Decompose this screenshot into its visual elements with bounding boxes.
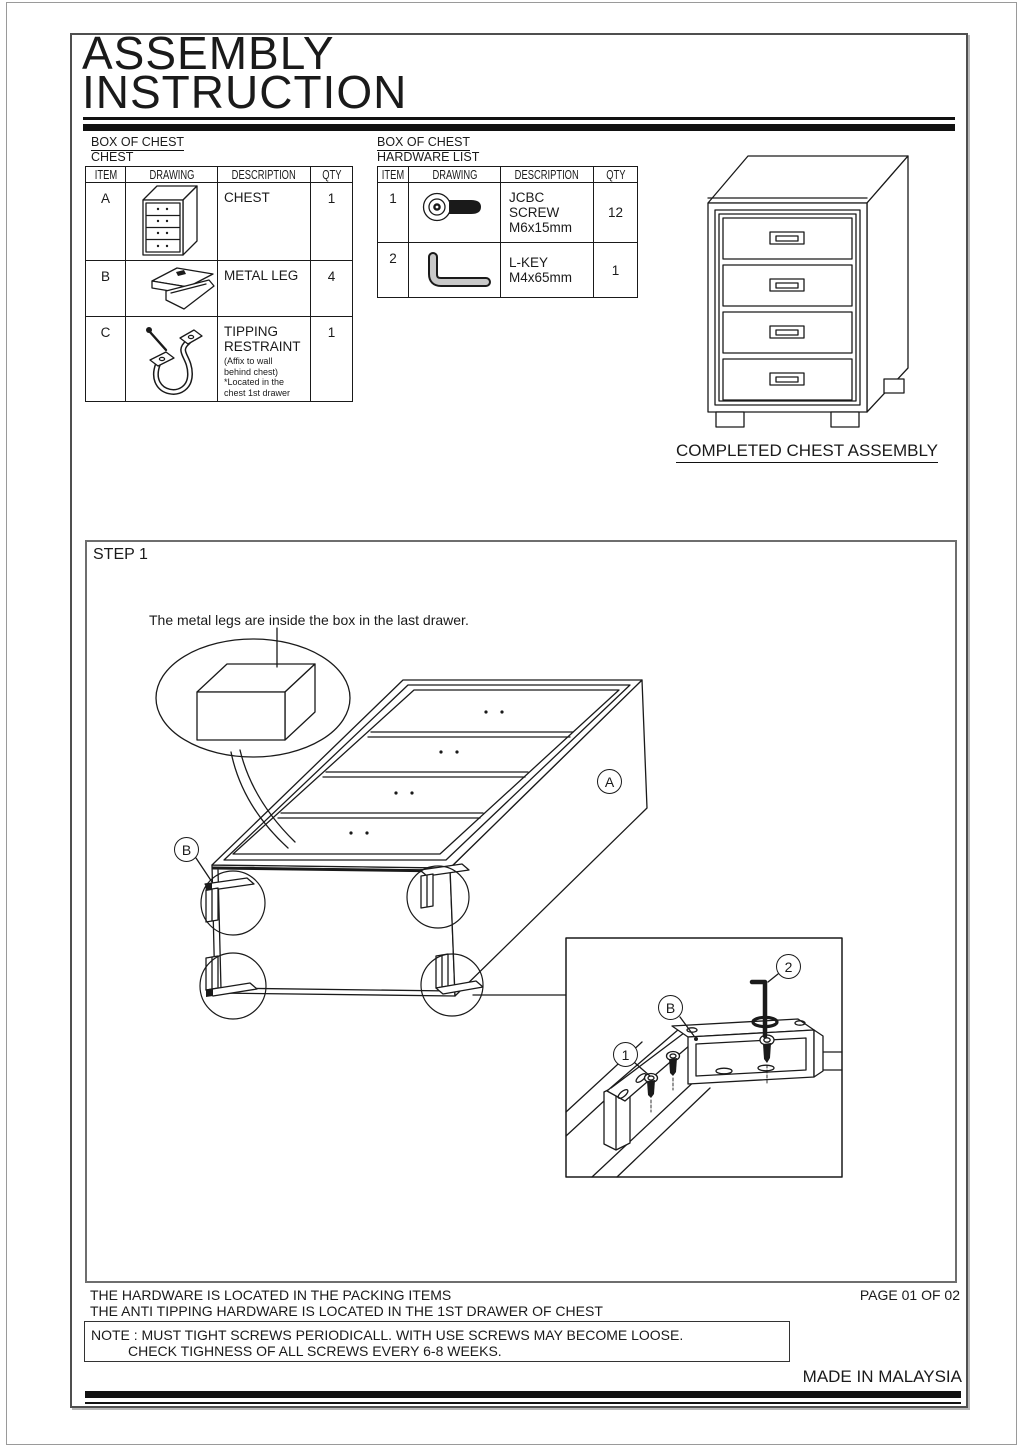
completed-chest-drawing — [708, 156, 908, 427]
assembly-instruction-page: ASSEMBLY INSTRUCTION BOX OF CHEST CHEST … — [0, 0, 1024, 1449]
callout-inset-leg-b: B — [658, 995, 683, 1020]
parts-header-description: DESCRIPTION — [218, 167, 311, 183]
hardware-header-qty: QTY — [594, 167, 637, 183]
hardware-table-label-line1: BOX OF CHEST — [377, 136, 470, 151]
leg-detail-inset — [566, 938, 842, 1177]
parts-header-item: ITEM — [86, 167, 126, 183]
hardware-header-drawing: DRAWING — [409, 167, 501, 183]
hardware-table: ITEM DRAWING DESCRIPTION QTY 1 JCBC SCRE… — [377, 166, 638, 298]
callout-inset-lkey-2: 2 — [776, 954, 801, 979]
parts-row-c-description-title: TIPPING RESTRAINT — [224, 324, 310, 354]
hardware-header-item: ITEM — [378, 167, 409, 183]
parts-row-c-note: (Affix to wall behind chest) *Located in… — [224, 356, 290, 398]
parts-row-c-item: C — [86, 317, 126, 401]
completed-assembly-caption: COMPLETED CHEST ASSEMBLY — [676, 441, 938, 461]
hardware-row-2-qty: 1 — [594, 243, 637, 297]
parts-header-drawing: DRAWING — [126, 167, 218, 183]
parts-row-b-item: B — [86, 261, 126, 317]
hardware-row-1-qty: 12 — [594, 183, 637, 243]
footer-note-line2: CHECK TIGHNESS OF ALL SCREWS EVERY 6-8 W… — [128, 1343, 502, 1359]
hardware-row-1-item: 1 — [378, 183, 409, 243]
hardware-header-description: DESCRIPTION — [501, 167, 594, 183]
parts-row-a-description: CHEST — [218, 183, 311, 261]
hardware-row-2-drawing-cell — [409, 243, 501, 297]
footer-origin: MADE IN MALAYSIA — [700, 1367, 962, 1387]
parts-row-a-item: A — [86, 183, 126, 261]
parts-row-c-description: TIPPING RESTRAINT (Affix to wall behind … — [218, 317, 311, 401]
parts-table: ITEM DRAWING DESCRIPTION QTY A CHEST 1 B… — [85, 166, 353, 402]
parts-header-qty: QTY — [311, 167, 352, 183]
parts-row-b-drawing-cell — [126, 261, 218, 317]
parts-row-b-description: METAL LEG — [218, 261, 311, 317]
step1-label: STEP 1 — [93, 546, 148, 564]
parts-table-label: BOX OF CHEST CHEST — [91, 136, 184, 164]
parts-row-c-qty: 1 — [311, 317, 352, 401]
hardware-row-1-drawing-cell — [409, 183, 501, 243]
parts-row-c-drawing-cell — [126, 317, 218, 401]
parts-row-b-qty: 4 — [311, 261, 352, 317]
callout-leg-b: B — [174, 837, 199, 862]
callout-inset-screw-1: 1 — [613, 1042, 638, 1067]
parts-table-label-line1: BOX OF CHEST — [91, 136, 184, 151]
b-leader-line — [196, 858, 212, 882]
footer-note-line1: NOTE : MUST TIGHT SCREWS PERIODICALL. WI… — [91, 1327, 683, 1343]
callout-chest-a: A — [597, 769, 622, 794]
footer-hardware-location: THE HARDWARE IS LOCATED IN THE PACKING I… — [90, 1287, 451, 1303]
hardware-row-1-description: JCBC SCREW M6x15mm — [501, 183, 594, 243]
parts-table-label-line2: CHEST — [91, 151, 184, 164]
footer-page-number: PAGE 01 OF 02 — [760, 1287, 960, 1303]
parts-row-a-drawing-cell — [126, 183, 218, 261]
step1-caption: The metal legs are inside the box in the… — [149, 612, 469, 628]
parts-row-a-qty: 1 — [311, 183, 352, 261]
hardware-row-2-item: 2 — [378, 243, 409, 297]
hardware-table-label: BOX OF CHEST HARDWARE LIST — [377, 136, 479, 164]
footer-anti-tipping-location: THE ANTI TIPPING HARDWARE IS LOCATED IN … — [90, 1303, 603, 1319]
hardware-row-2-description: L-KEY M4x65mm — [501, 243, 594, 297]
page-title: ASSEMBLY INSTRUCTION — [82, 34, 407, 112]
title-line-2: INSTRUCTION — [82, 73, 407, 112]
hardware-table-label-line2: HARDWARE LIST — [377, 151, 479, 164]
